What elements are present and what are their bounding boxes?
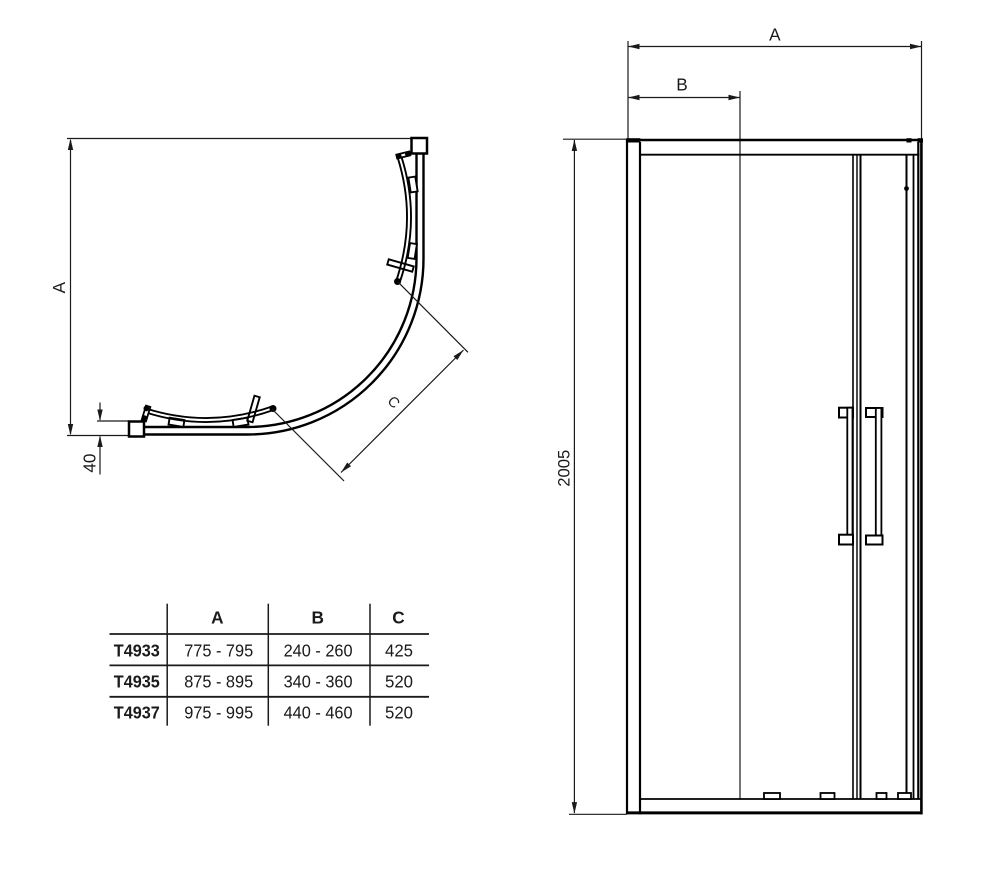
svg-text:B: B [676,74,687,94]
svg-text:520: 520 [385,671,413,691]
svg-text:520: 520 [385,702,413,722]
svg-text:A: A [769,24,781,44]
svg-text:240 - 260: 240 - 260 [284,641,353,661]
svg-text:425: 425 [385,641,413,661]
svg-text:C: C [392,608,404,628]
svg-text:B: B [311,608,323,628]
svg-text:975 - 995: 975 - 995 [184,702,253,722]
svg-text:2005: 2005 [555,450,574,487]
svg-text:775 - 795: 775 - 795 [184,641,253,661]
svg-text:440 - 460: 440 - 460 [284,702,353,722]
svg-text:T4937: T4937 [114,702,160,722]
svg-text:T4933: T4933 [114,641,160,661]
svg-text:875 - 895: 875 - 895 [184,671,253,691]
svg-text:40: 40 [79,454,99,473]
svg-text:A: A [49,281,69,293]
svg-text:340 - 360: 340 - 360 [284,671,353,691]
svg-text:A: A [211,608,223,628]
svg-text:T4935: T4935 [114,671,160,691]
